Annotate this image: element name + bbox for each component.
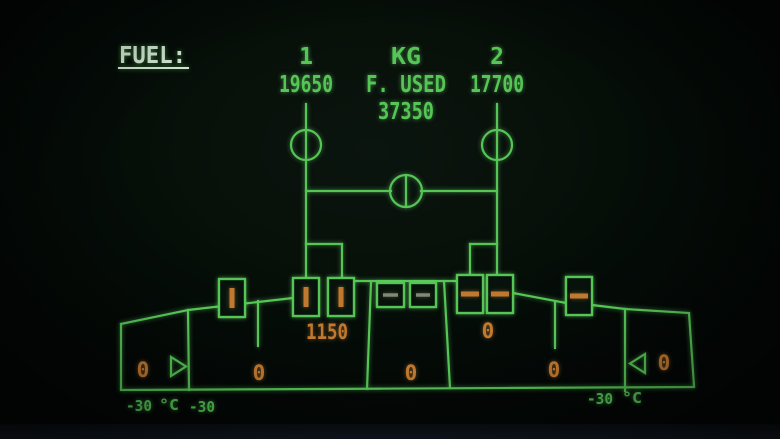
tank-quantities: 0 0 1150 0 0 0 0	[137, 319, 671, 385]
fuel-used-value: 37350	[378, 99, 434, 125]
right-outer-tank-qty: 0	[658, 351, 671, 375]
engine1-fuel-quantity: 19650	[279, 72, 333, 98]
ecam-fuel-display: FUEL: 1 19650 KG F. USED 37350 2 17700	[0, 0, 780, 439]
left-outer-tank-top	[121, 310, 188, 324]
left-outer-temp: -30	[126, 397, 152, 415]
right-inner-temp: -30	[587, 390, 613, 408]
right-inner-tank-qty: 0	[548, 358, 561, 382]
units-label: KG	[391, 44, 421, 70]
center-tank-qty: 0	[405, 361, 418, 385]
right-wing-tank-top	[513, 293, 566, 303]
fuel-plumbing	[291, 104, 512, 279]
right-transfer-valve-icon	[630, 354, 645, 373]
header: FUEL: 1 19650 KG F. USED 37350 2 17700	[118, 43, 524, 125]
page-title: FUEL:	[119, 43, 186, 69]
right-temp-unit: °C	[622, 389, 642, 407]
center-tank-right-wall	[444, 281, 450, 388]
fuel-used-label: F. USED	[366, 72, 446, 98]
left-transfer-valve-icon	[171, 357, 186, 376]
right-collector-qty: 0	[482, 319, 495, 343]
right-outer-tank-top	[625, 309, 689, 313]
center-tank-left-wall	[367, 282, 371, 389]
engine1-label: 1	[299, 44, 313, 70]
left-tank-divider	[188, 310, 189, 390]
left-temp-unit: °C	[159, 396, 179, 414]
tank-temperatures: -30 °C -30 -30 °C	[126, 389, 642, 416]
left-inner-tank-qty: 0	[253, 361, 266, 385]
left-outer-tank-qty: 0	[137, 358, 150, 382]
left-inner-temp: -30	[189, 398, 215, 416]
fuel-synoptic: FUEL: 1 19650 KG F. USED 37350 2 17700	[0, 0, 780, 439]
right-wing-tank-top-outboard	[592, 305, 625, 309]
engine2-fuel-quantity: 17700	[470, 72, 524, 98]
engine2-label: 2	[490, 44, 504, 70]
left-collector-qty: 1150	[306, 320, 348, 344]
right-outer-tank-edge	[689, 313, 694, 386]
